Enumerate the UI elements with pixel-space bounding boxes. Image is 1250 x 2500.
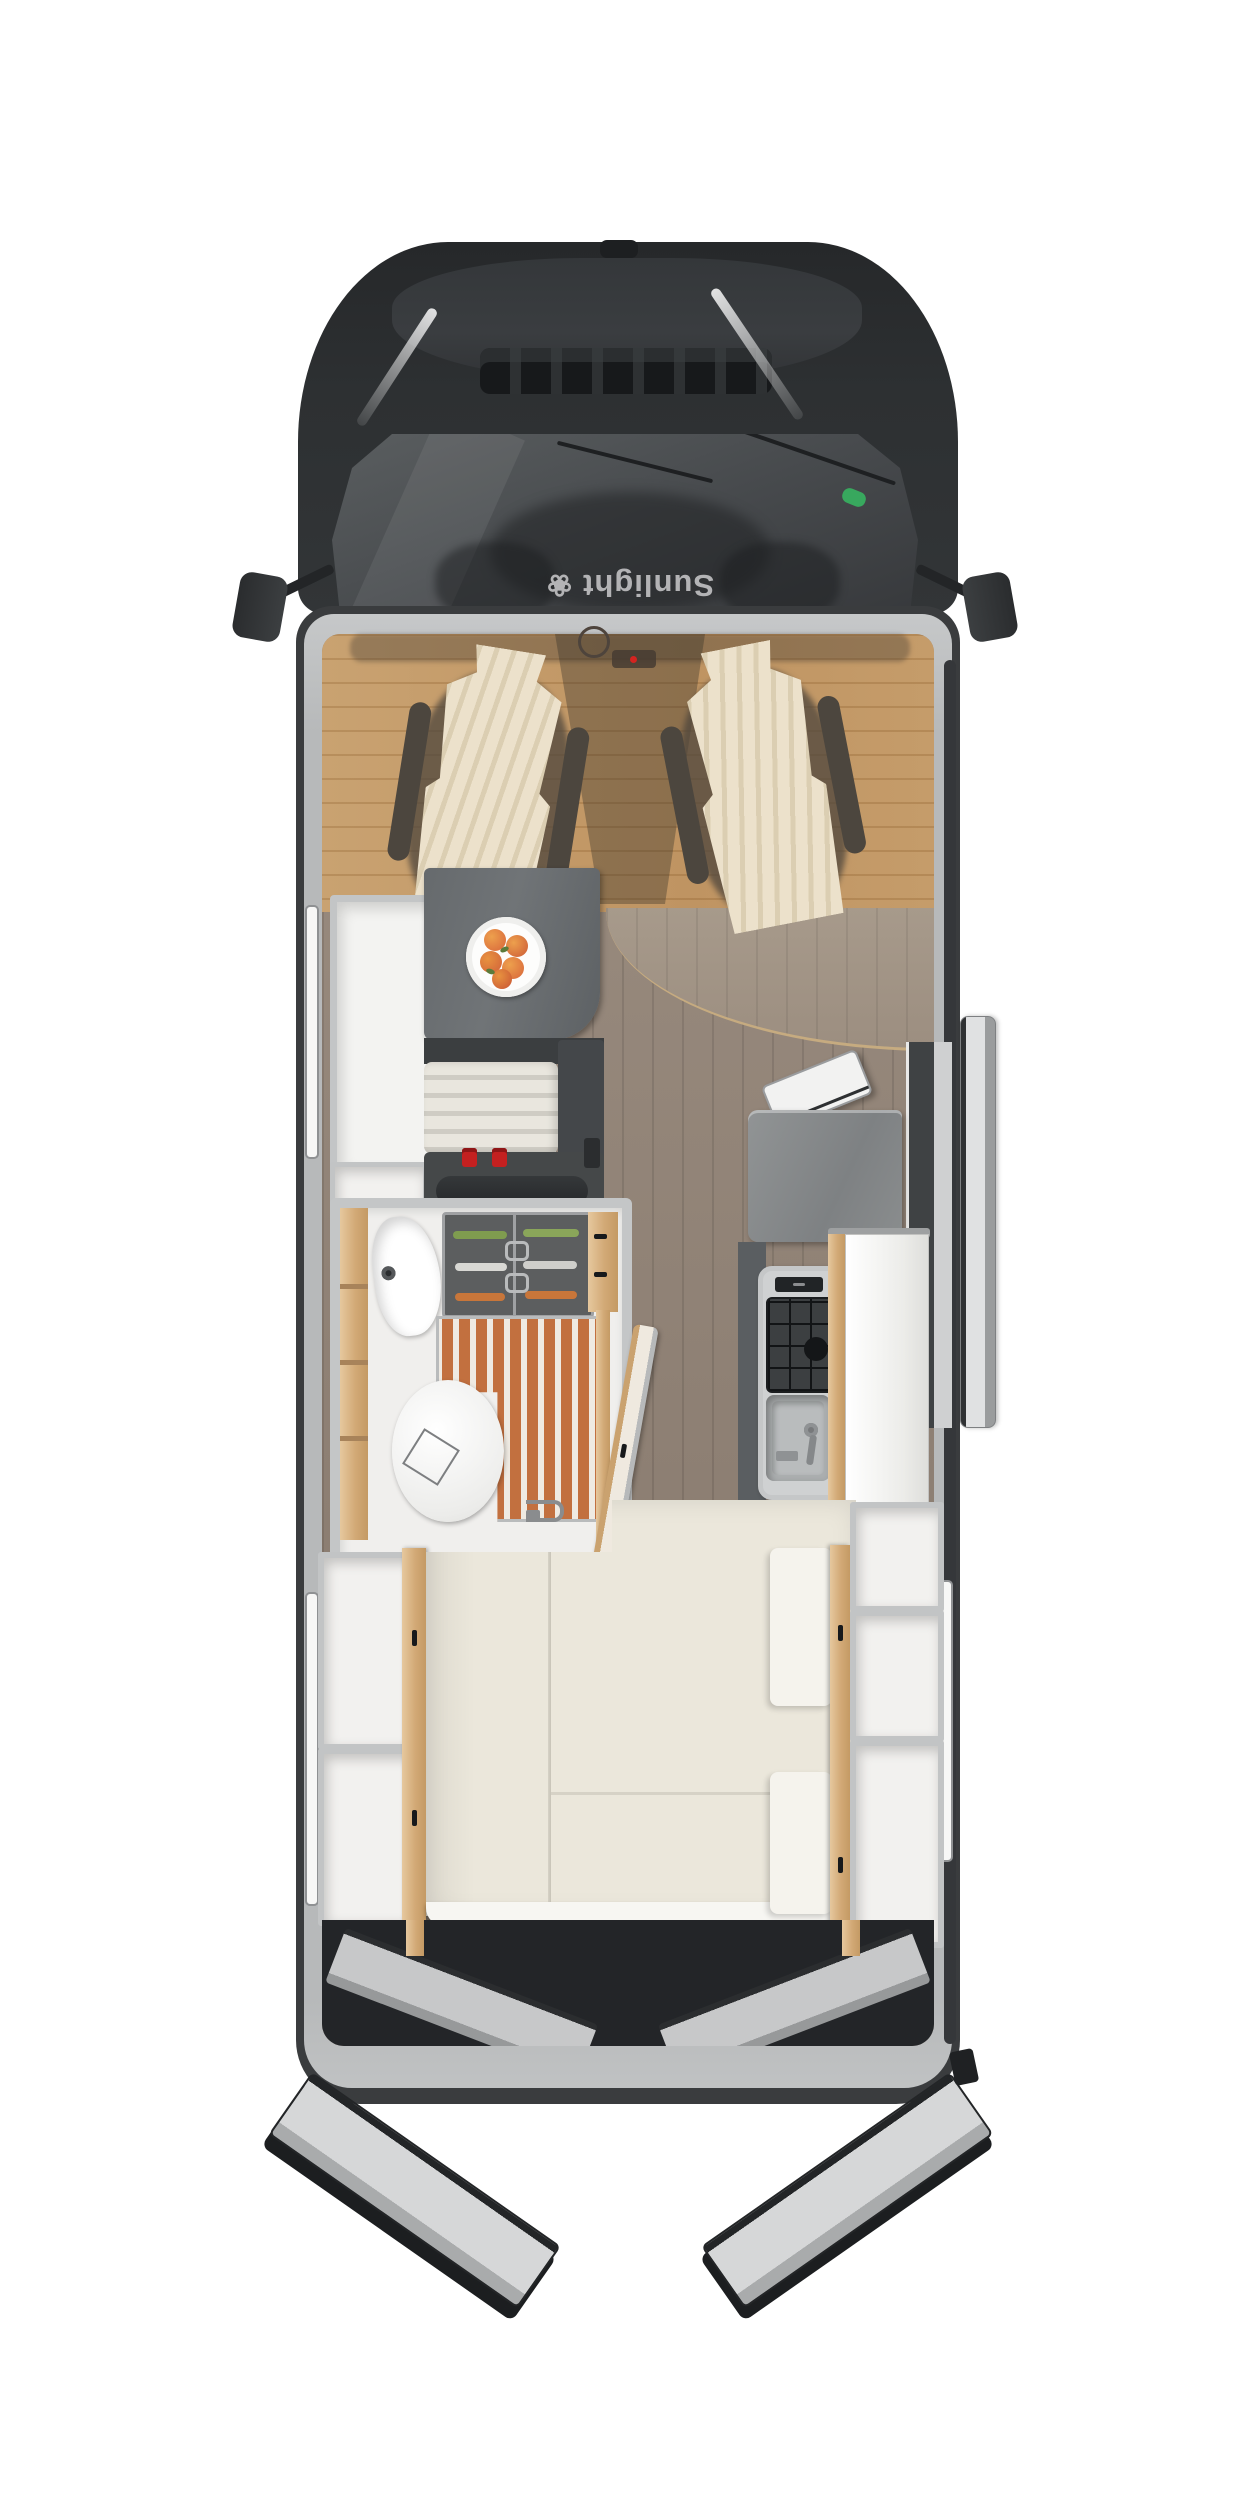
rail-clamp-icon xyxy=(505,1241,529,1261)
rail-clamp-icon xyxy=(505,1273,529,1293)
bench-bracket xyxy=(584,1138,600,1168)
glass-cabinet xyxy=(442,1212,594,1318)
fridge-wood-edge xyxy=(828,1234,845,1518)
bench-seat-cushion xyxy=(424,1062,558,1154)
bed-shading xyxy=(426,1552,548,1916)
bottle-orange xyxy=(455,1293,505,1301)
roof-antenna-icon xyxy=(600,240,638,258)
kitchen-counter xyxy=(748,1110,902,1242)
glass-cabinet-divider xyxy=(513,1215,516,1315)
stove-control-panel xyxy=(775,1277,823,1292)
entry-door-sill xyxy=(934,1042,952,1428)
garage-door-panel-left xyxy=(325,1928,598,2046)
side-mirror-right xyxy=(961,570,1020,643)
window-left-front xyxy=(305,905,319,1159)
toilet xyxy=(392,1380,504,1522)
garage-door-panel-right xyxy=(658,1928,931,2046)
bottle-white xyxy=(455,1263,507,1271)
divider-handle xyxy=(412,1810,417,1826)
bottle-orange xyxy=(525,1291,577,1299)
garage-bay xyxy=(322,1920,934,2046)
bathroom-door-handle xyxy=(620,1444,627,1459)
steering-wheel-icon xyxy=(578,626,610,658)
bathroom xyxy=(330,1198,632,1570)
drawer-handle xyxy=(594,1272,607,1277)
kitchen-sink xyxy=(766,1395,830,1481)
storage-niche-right-2 xyxy=(850,1610,944,1742)
bottle-white xyxy=(523,1261,577,1269)
shelf-divider xyxy=(340,1436,368,1441)
divider-handle xyxy=(838,1625,843,1641)
fruit-plate xyxy=(466,917,546,997)
brand-logo-text: Sunlight xyxy=(582,567,714,603)
seatbelt-buckle xyxy=(492,1148,507,1167)
control-knob xyxy=(793,1283,805,1286)
side-mirror-left xyxy=(231,570,290,643)
garage-wood-corner-right xyxy=(842,1920,860,1956)
storage-niche-right-1 xyxy=(850,1502,944,1612)
fridge-tower xyxy=(828,1228,930,1522)
garage-wood-corner-left xyxy=(406,1920,424,1956)
air-intake-grille xyxy=(480,348,772,394)
divider-handle xyxy=(412,1630,417,1646)
fridge-face xyxy=(845,1234,929,1518)
entry-door-open xyxy=(960,1016,996,1428)
window-left-rear xyxy=(305,1592,319,1906)
shelf-divider xyxy=(340,1360,368,1365)
bed-cushion-1 xyxy=(770,1548,832,1706)
bed-divider-left xyxy=(402,1548,426,1946)
rear-door-left-open xyxy=(268,2072,561,2309)
toilet-lid-line xyxy=(402,1428,460,1486)
stove-grate xyxy=(766,1297,834,1393)
floorplan-canvas: Sunlight ❀ xyxy=(0,0,1250,2500)
floor-drain-icon xyxy=(526,1500,570,1524)
burner-icon xyxy=(804,1337,828,1361)
bathroom-shelves xyxy=(340,1208,368,1540)
windshield-sticker xyxy=(840,486,868,509)
dinette-table xyxy=(424,868,600,1040)
drawer-handle xyxy=(594,1234,607,1239)
storage-niche-right-3 xyxy=(850,1740,944,1948)
brand-logo: Sunlight ❀ xyxy=(505,563,755,607)
bed-seam-vertical xyxy=(548,1500,551,1916)
divider-handle xyxy=(838,1857,843,1873)
seatbelt-buckle xyxy=(462,1148,477,1167)
sink-drainer xyxy=(776,1451,798,1461)
vanity-sink xyxy=(367,1212,447,1339)
bed-cushion-2 xyxy=(770,1772,832,1914)
rear-door-right-open xyxy=(701,2072,994,2309)
bottle-green xyxy=(523,1229,579,1237)
peach xyxy=(506,935,528,957)
vanity-faucet-icon xyxy=(381,1265,397,1281)
bathroom-drawer-column xyxy=(588,1212,618,1312)
drain-box xyxy=(526,1510,540,1522)
shelf-divider xyxy=(340,1284,368,1289)
brand-flower-icon: ❀ xyxy=(546,568,572,603)
warning-light xyxy=(630,656,637,663)
bed-divider-right xyxy=(830,1545,850,1943)
bottle-green xyxy=(453,1231,507,1239)
wiper-left-icon xyxy=(557,441,713,484)
